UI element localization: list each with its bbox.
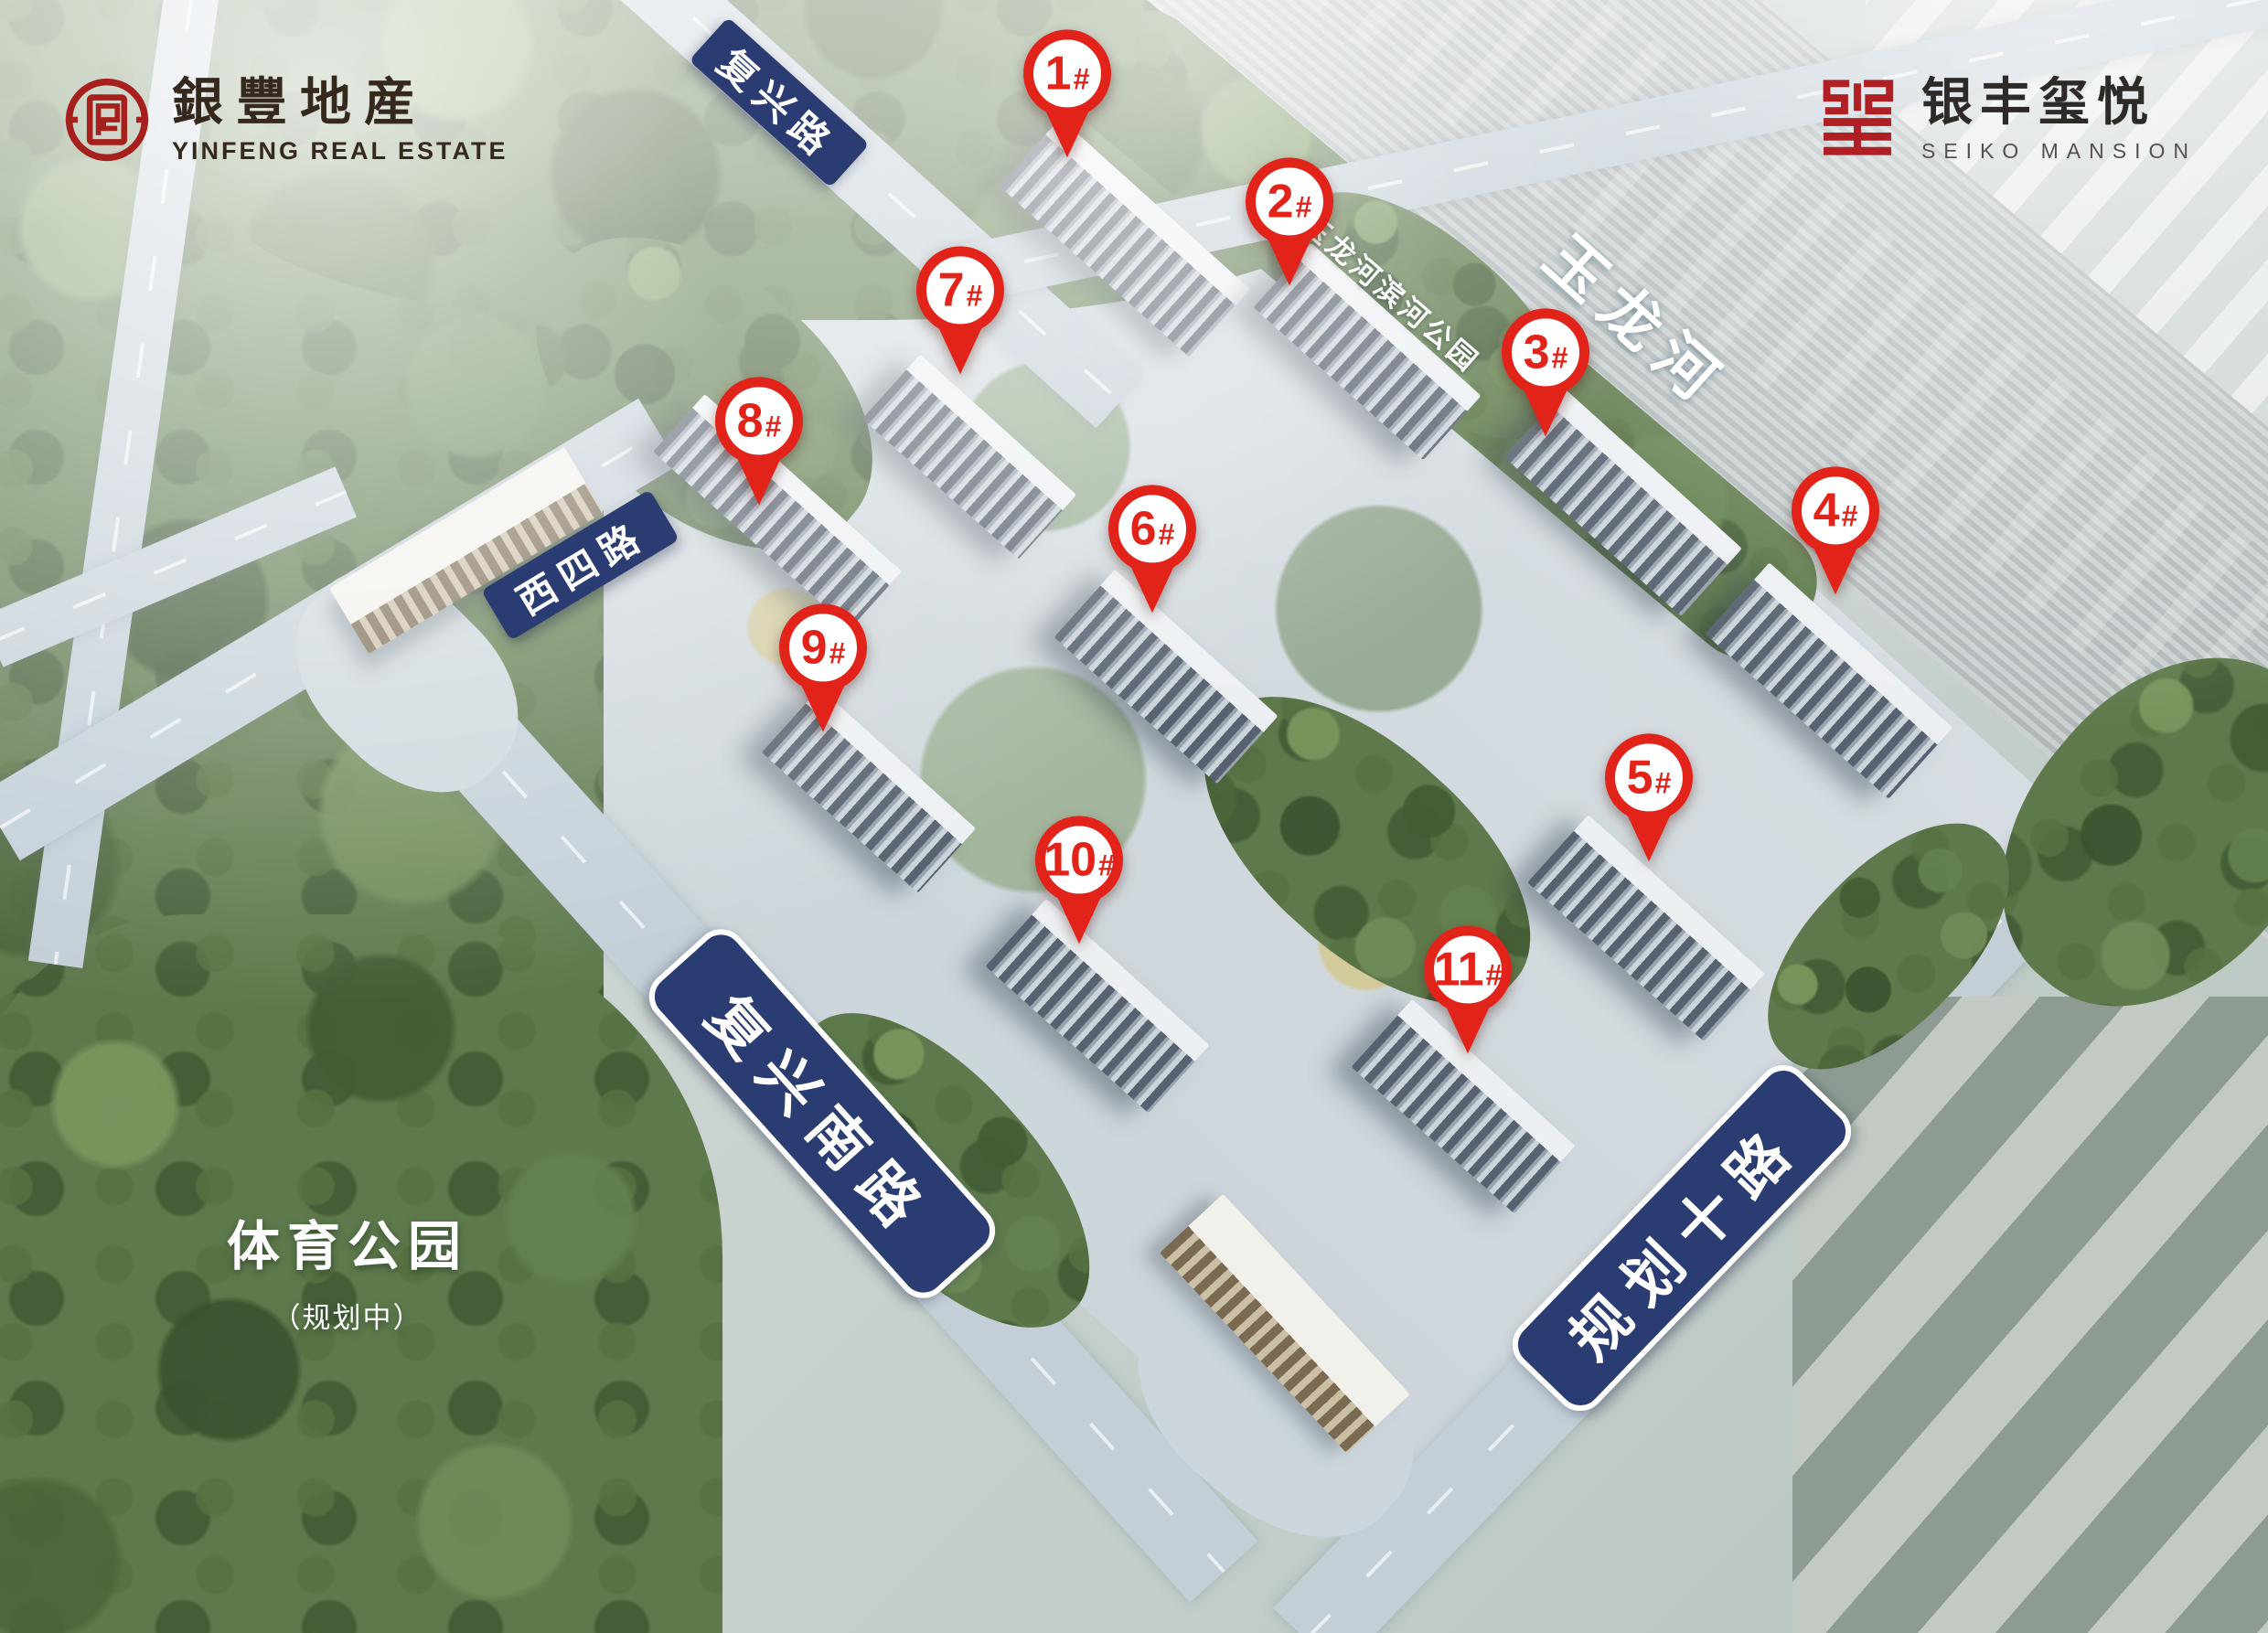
marker-number: 4 — [1813, 476, 1840, 544]
marker-tail-icon — [800, 682, 846, 731]
marker-hash: # — [967, 261, 983, 329]
marker-circle: 8# — [715, 377, 803, 464]
marker-hash: # — [1074, 45, 1090, 112]
marker-building-8[interactable]: 8# — [715, 377, 803, 505]
marker-hash: # — [829, 619, 846, 687]
marker-number: 2 — [1268, 167, 1294, 235]
marker-circle: 3# — [1502, 308, 1589, 396]
marker-circle: 1# — [1023, 29, 1111, 117]
marker-number: 7 — [938, 256, 965, 324]
marker-tail-icon — [736, 455, 782, 505]
marker-circle: 9# — [779, 603, 867, 691]
marker-circle: 10# — [1035, 816, 1123, 903]
marker-building-10[interactable]: 10# — [1035, 816, 1123, 944]
marker-building-5[interactable]: 5# — [1605, 733, 1693, 861]
marker-circle: 4# — [1792, 466, 1879, 554]
marker-hash: # — [1159, 500, 1175, 568]
marker-tail-icon — [1056, 894, 1102, 944]
sports-park-label: 体育公园 （规划中） — [219, 1203, 476, 1336]
developer-seal-icon — [64, 77, 150, 167]
marker-tail-icon — [1044, 108, 1090, 157]
city-blocks-near — [1792, 997, 2268, 1633]
marker-number: 5 — [1627, 743, 1653, 811]
marker-circle: 2# — [1246, 157, 1333, 245]
marker-building-6[interactable]: 6# — [1108, 485, 1196, 613]
marker-number: 1 — [1045, 39, 1072, 107]
project-name-cn: 银丰玺悦 — [1921, 77, 2197, 128]
marker-circle: 6# — [1108, 485, 1196, 572]
marker-building-2[interactable]: 2# — [1246, 157, 1333, 285]
marker-number: 11 — [1434, 935, 1484, 1003]
marker-tail-icon — [1445, 1004, 1491, 1053]
marker-number: 10 — [1043, 826, 1097, 893]
marker-tail-icon — [1626, 812, 1672, 861]
marker-tail-icon — [937, 325, 983, 374]
marker-hash: # — [1842, 482, 1858, 550]
marker-hash: # — [765, 392, 782, 460]
sports-park-title: 体育公园 — [219, 1203, 476, 1280]
marker-hash: # — [1098, 831, 1115, 899]
marker-circle: 11# — [1424, 925, 1512, 1013]
marker-tail-icon — [1267, 236, 1312, 285]
sports-park-status: （规划中） — [219, 1295, 476, 1336]
marker-circle: 7# — [916, 246, 1004, 334]
marker-number: 6 — [1130, 495, 1157, 562]
developer-logo: 銀豐地産 YINFENG REAL ESTATE — [64, 77, 508, 167]
aerial-rendering: 复兴路 西四路 复兴南路 规划十路 玉龙河 玉龙河滨河公园 体育公园 （规划中）… — [0, 0, 2268, 1633]
marker-building-7[interactable]: 7# — [916, 246, 1004, 374]
marker-building-1[interactable]: 1# — [1023, 29, 1111, 157]
marker-building-3[interactable]: 3# — [1502, 308, 1589, 436]
marker-building-9[interactable]: 9# — [779, 603, 867, 731]
marker-building-4[interactable]: 4# — [1792, 466, 1879, 594]
marker-number: 8 — [737, 387, 764, 454]
marker-number: 9 — [801, 614, 828, 681]
marker-hash: # — [1296, 173, 1312, 240]
marker-hash: # — [1655, 749, 1672, 816]
marker-hash: # — [1552, 324, 1568, 391]
marker-number: 3 — [1524, 318, 1550, 386]
project-logo: 银丰玺悦 SEIKO MANSION — [1817, 77, 2197, 165]
marker-circle: 5# — [1605, 733, 1693, 821]
project-mark-icon — [1817, 77, 1898, 165]
marker-building-11[interactable]: 11# — [1424, 925, 1512, 1053]
developer-name-en: YINFENG REAL ESTATE — [172, 137, 508, 165]
marker-tail-icon — [1813, 545, 1858, 594]
marker-tail-icon — [1523, 387, 1568, 436]
marker-tail-icon — [1129, 563, 1175, 613]
project-name-en: SEIKO MANSION — [1921, 139, 2197, 164]
developer-name-cn: 銀豐地産 — [172, 77, 508, 128]
marker-hash: # — [1486, 941, 1503, 1009]
